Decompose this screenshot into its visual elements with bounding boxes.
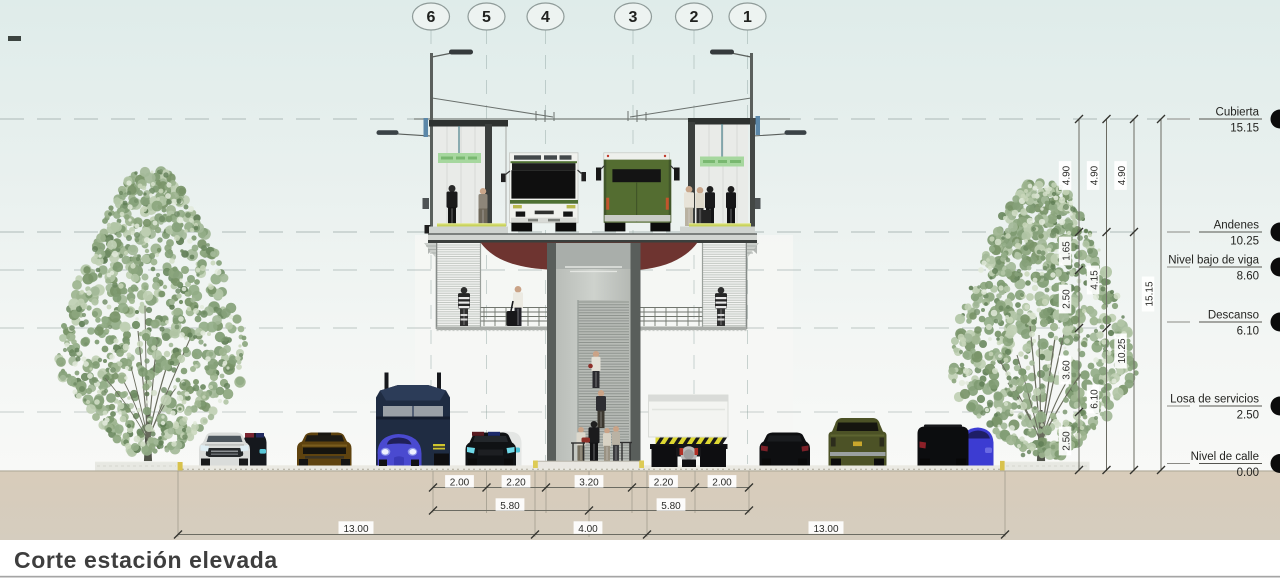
svg-text:2.50: 2.50 — [1237, 410, 1259, 422]
svg-text:8.60: 8.60 — [1237, 271, 1259, 283]
svg-text:Nivel de calle: Nivel de calle — [1191, 451, 1259, 463]
svg-text:13.00: 13.00 — [343, 524, 368, 535]
svg-text:5: 5 — [482, 9, 491, 26]
svg-text:4: 4 — [541, 9, 550, 26]
svg-text:6.10: 6.10 — [1089, 389, 1100, 409]
svg-text:5.80: 5.80 — [500, 501, 520, 512]
svg-text:2.20: 2.20 — [654, 478, 674, 489]
svg-text:2.00: 2.00 — [450, 478, 470, 489]
svg-text:13.00: 13.00 — [813, 524, 838, 535]
svg-text:Losa de servicios: Losa de servicios — [1170, 394, 1259, 406]
svg-text:4.00: 4.00 — [578, 524, 598, 535]
svg-text:6.10: 6.10 — [1237, 326, 1259, 338]
svg-text:4.90: 4.90 — [1117, 165, 1128, 185]
svg-text:2: 2 — [690, 9, 699, 26]
svg-text:2.50: 2.50 — [1061, 431, 1072, 451]
svg-text:Nivel bajo de viga: Nivel bajo de viga — [1168, 255, 1259, 267]
svg-text:4.90: 4.90 — [1061, 165, 1072, 185]
svg-text:4.90: 4.90 — [1089, 165, 1100, 185]
svg-text:15.15: 15.15 — [1230, 123, 1259, 135]
svg-text:4.15: 4.15 — [1089, 270, 1100, 290]
svg-text:Descanso: Descanso — [1208, 310, 1259, 322]
svg-text:10.25: 10.25 — [1230, 236, 1259, 248]
svg-text:1: 1 — [743, 9, 752, 26]
svg-text:3.60: 3.60 — [1061, 360, 1072, 380]
svg-text:Andenes: Andenes — [1214, 220, 1260, 232]
svg-text:Cubierta: Cubierta — [1216, 107, 1260, 119]
svg-text:2.00: 2.00 — [712, 478, 732, 489]
svg-text:2.50: 2.50 — [1061, 289, 1072, 309]
svg-text:2.20: 2.20 — [506, 478, 526, 489]
svg-text:0.00: 0.00 — [1237, 467, 1259, 479]
svg-text:15.15: 15.15 — [1144, 281, 1155, 306]
svg-text:Corte estación elevada: Corte estación elevada — [14, 547, 278, 573]
svg-text:5.80: 5.80 — [661, 501, 681, 512]
svg-text:10.25: 10.25 — [1117, 338, 1128, 363]
svg-text:3.20: 3.20 — [579, 478, 599, 489]
svg-text:6: 6 — [427, 9, 436, 26]
svg-text:1.65: 1.65 — [1061, 241, 1072, 261]
svg-text:3: 3 — [629, 9, 638, 26]
